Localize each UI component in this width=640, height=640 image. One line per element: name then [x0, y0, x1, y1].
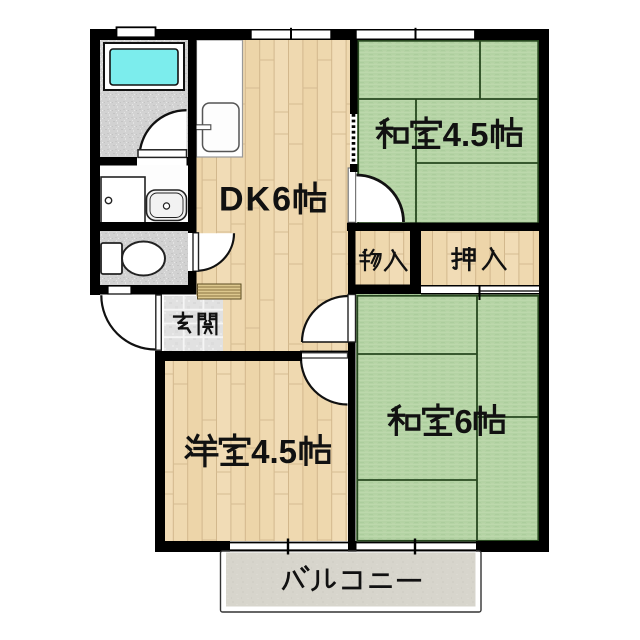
svg-text:4.5: 4.5: [443, 116, 489, 153]
svg-text:DK6: DK6: [219, 181, 293, 219]
svg-text:4.5: 4.5: [251, 433, 297, 470]
svg-text:6: 6: [454, 403, 472, 440]
